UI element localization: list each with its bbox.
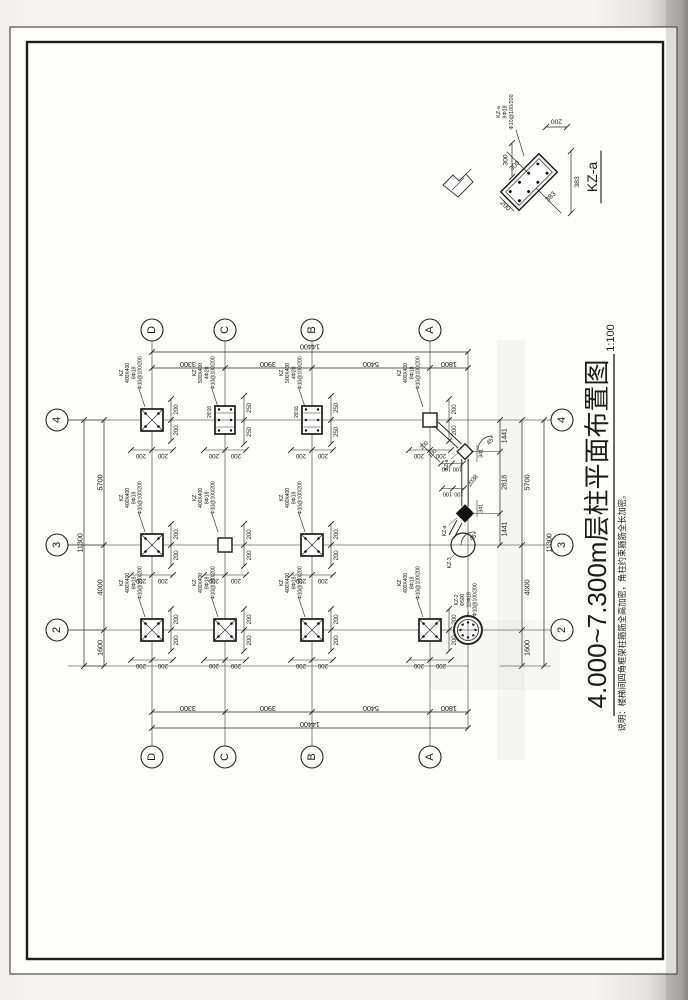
- dim-label: 5400: [363, 360, 379, 369]
- column-label: KZ: [119, 369, 125, 376]
- grid-letter: C: [219, 326, 231, 334]
- column-side-note: 2Φ16: [207, 406, 213, 418]
- dim-label: 200: [173, 550, 180, 561]
- dim-label: 200: [451, 425, 458, 436]
- column-label: KZ: [192, 369, 198, 376]
- grid-number: 3: [51, 542, 63, 548]
- column-label: 400X400: [125, 488, 131, 508]
- dim-label: 200: [208, 452, 219, 459]
- kza-detail-label: KZ-a: [496, 106, 502, 118]
- kza-detail-label: 8Φ18: [503, 105, 509, 118]
- rebar-dot: [230, 419, 232, 421]
- rebar-dot: [317, 408, 319, 410]
- dim-label: 200: [317, 662, 328, 669]
- rebar-dot: [144, 412, 147, 415]
- column-label: KZ: [279, 579, 285, 586]
- column-label: Φ10@100/200: [211, 481, 217, 514]
- rebar-dot: [317, 429, 319, 431]
- column-label: KZ: [279, 494, 285, 501]
- dim-label: 200: [333, 635, 340, 646]
- column-label: 8Φ18: [291, 492, 297, 505]
- dim-label: 200: [135, 662, 146, 669]
- dim-label: 14400: [300, 343, 320, 352]
- sheet-note: 说明：楼梯间四角框架柱箍筋全高加密，角柱约束箍筋全长加密。: [617, 491, 627, 732]
- dim-label: 3300: [180, 704, 196, 713]
- dim-label: 5400: [363, 704, 379, 713]
- grid-letter: D: [146, 753, 158, 761]
- column-label: 500X400: [285, 363, 291, 383]
- column-side-note: 2Φ16: [294, 406, 300, 418]
- column-label: 400X400: [125, 573, 131, 593]
- rebar-dot: [305, 419, 307, 421]
- dim-label: 11300: [76, 533, 85, 552]
- rebar-dot: [304, 537, 307, 540]
- rebar-dot: [218, 429, 220, 431]
- rebar-dot: [144, 635, 147, 638]
- dim-label: 1800: [441, 360, 457, 369]
- column-label: Φ10@100/200: [298, 356, 304, 389]
- column-label: 400X400: [403, 363, 409, 383]
- dim-label: 200: [246, 635, 253, 646]
- dim-label: 100: [454, 491, 463, 497]
- dim-label: 341: [479, 449, 485, 458]
- column-label: 400X400: [198, 573, 204, 593]
- kz3-label: KZ-3: [447, 557, 453, 568]
- column-label: 400X400: [403, 573, 409, 593]
- scan-edge-shadow: [666, 0, 688, 1000]
- column-label: KZ: [397, 579, 403, 586]
- column-label: 400X400: [198, 488, 204, 508]
- dim-label: 200: [173, 614, 180, 625]
- dim-label: 250: [333, 426, 340, 437]
- rebar-dot: [317, 622, 320, 625]
- dim-label: 200: [246, 614, 253, 625]
- rebar-dot: [144, 425, 147, 428]
- rebar-dot: [144, 550, 147, 553]
- grid-number: 3: [556, 542, 568, 548]
- rebar-dot: [157, 412, 160, 415]
- rebar-dot: [317, 550, 320, 553]
- rebar-dot: [422, 622, 425, 625]
- rebar-dot: [157, 537, 160, 540]
- column-label: 8Φ18: [204, 577, 210, 590]
- rebar-dot: [304, 635, 307, 638]
- dim-label: 200: [173, 635, 180, 646]
- dim-label: 100: [443, 491, 452, 497]
- column-label: KZ: [279, 369, 285, 376]
- dim-label: 200: [173, 425, 180, 436]
- grid-letter: A: [424, 753, 436, 761]
- dim-label: 11300: [545, 533, 554, 552]
- rebar-dot: [230, 622, 233, 625]
- column-label: 8Φ18: [204, 492, 210, 505]
- dim-label: 200: [317, 452, 328, 459]
- rebar-dot: [217, 622, 220, 625]
- dim-label: 200: [157, 577, 168, 584]
- column-open: [423, 413, 437, 427]
- rebar-dot: [305, 408, 307, 410]
- rebar-dot: [157, 550, 160, 553]
- kz2-label: KZ-2: [454, 594, 460, 605]
- column-label: 400X400: [125, 363, 131, 383]
- kz2-label: Φ10@100/200: [473, 583, 479, 616]
- dim-label: 200: [413, 662, 424, 669]
- scan-streak: [497, 340, 525, 760]
- column-label: 500X400: [198, 363, 204, 383]
- kza-detail-label: Φ10@100/200: [509, 94, 515, 129]
- sheet-scale: 1:100: [605, 324, 617, 352]
- dim-label: 200: [157, 452, 168, 459]
- dim-label: 250: [333, 402, 340, 413]
- rebar-dot: [230, 429, 232, 431]
- kza-plan-label: KZ-a: [444, 459, 450, 470]
- scanned-drawing-page: DDCCBBAA44332214400330039005400180033003…: [0, 0, 688, 1000]
- column-label: 8Φ18: [409, 577, 415, 590]
- grid-number: 4: [51, 417, 63, 423]
- column-label: 400X400: [285, 573, 291, 593]
- column-label: 400X400: [285, 488, 291, 508]
- grid-letter: B: [306, 753, 318, 760]
- dim-label: 200: [173, 529, 180, 540]
- kz2-label: 12Φ18: [466, 592, 472, 607]
- column-label: KZ: [119, 579, 125, 586]
- kza-detail-title: KZ-a: [584, 162, 600, 193]
- dim-label: 200: [451, 404, 458, 415]
- dim-label: 200: [333, 529, 340, 540]
- column-label: Φ10@100/200: [211, 566, 217, 599]
- rebar-dot: [144, 537, 147, 540]
- dim-label: 1800: [441, 704, 457, 713]
- rebar-dot: [157, 425, 160, 428]
- dim-label: 200: [230, 577, 241, 584]
- column-layout-plan: DDCCBBAA44332214400330039005400180033003…: [0, 0, 688, 1000]
- column-label: Φ10@100/200: [211, 356, 217, 389]
- dim-label: 200: [230, 662, 241, 669]
- dim-label: 100: [453, 466, 462, 472]
- rebar-dot: [218, 408, 220, 410]
- column-label: KZ: [192, 494, 198, 501]
- rebar-dot: [157, 622, 160, 625]
- grid-letter: B: [306, 326, 318, 333]
- scan-streak: [430, 620, 560, 690]
- column-label: KZ: [119, 494, 125, 501]
- rebar-dot: [317, 537, 320, 540]
- dim-label: 200: [173, 404, 180, 415]
- dim-label: 250: [246, 402, 253, 413]
- rebar-dot: [304, 550, 307, 553]
- grid-letter: D: [146, 326, 158, 334]
- column-label: Φ10@100/200: [138, 481, 144, 514]
- grid-number: 4: [556, 417, 568, 423]
- column-label: 4Φ20: [204, 367, 210, 380]
- rebar-dot: [157, 635, 160, 638]
- dim-label: 200: [246, 529, 253, 540]
- grid-number: 2: [51, 627, 63, 633]
- column-label: KZ: [192, 579, 198, 586]
- dim-label: 200: [295, 452, 306, 459]
- grid-letter: C: [219, 753, 231, 761]
- column-label: 8Φ18: [131, 367, 137, 380]
- dim-label: 4000: [96, 580, 105, 596]
- rebar-dot: [317, 419, 319, 421]
- rebar-dot: [144, 622, 147, 625]
- kz2-label: Φ500: [460, 594, 466, 607]
- dim-label: 200: [157, 662, 168, 669]
- column-label: Φ10@100/200: [298, 566, 304, 599]
- dim-label: 3300: [180, 360, 196, 369]
- dim-label: 200: [333, 550, 340, 561]
- dim-label: 5700: [96, 475, 105, 491]
- dim-label: 3900: [260, 704, 276, 713]
- dim-label: 14400: [300, 720, 320, 729]
- column-label: Φ10@100/200: [138, 356, 144, 389]
- rebar-dot: [422, 635, 425, 638]
- sheet-title: 4.000~7.300m层柱平面布置图: [582, 360, 612, 709]
- dim-label: 1600: [96, 640, 105, 656]
- column-label: 8Φ18: [131, 577, 137, 590]
- dim-label: 383: [574, 176, 581, 188]
- column-label: Φ10@100/200: [416, 356, 422, 389]
- dim-label: 200: [551, 118, 563, 125]
- dim-label: 200: [333, 614, 340, 625]
- dim-label: 300: [503, 154, 510, 166]
- dim-label: 200: [295, 662, 306, 669]
- dim-label: 200: [135, 452, 146, 459]
- column-label: KZ: [397, 369, 403, 376]
- column-open: [218, 538, 232, 552]
- sheet-outer-border: [10, 27, 677, 974]
- dim-label: 200: [317, 577, 328, 584]
- dim-label: 3900: [260, 360, 276, 369]
- kza-plan-label: KZ-a: [442, 525, 448, 536]
- column-label: 8Φ18: [291, 577, 297, 590]
- dim-label: 341: [479, 504, 485, 513]
- column-label: Φ10@100/200: [298, 481, 304, 514]
- rebar-dot: [305, 429, 307, 431]
- dim-label: 250: [246, 426, 253, 437]
- column-label: 4Φ20: [291, 367, 297, 380]
- column-label: 8Φ18: [409, 367, 415, 380]
- rebar-dot: [304, 622, 307, 625]
- rebar-dot: [218, 419, 220, 421]
- column-label: Φ10@100/200: [138, 566, 144, 599]
- rebar-dot: [217, 635, 220, 638]
- column-label: Φ10@100/200: [416, 566, 422, 599]
- rebar-dot: [230, 408, 232, 410]
- rebar-dot: [230, 635, 233, 638]
- dim-label: 200: [246, 550, 253, 561]
- dim-label: 200: [208, 662, 219, 669]
- column-label: 8Φ18: [131, 492, 137, 505]
- grid-letter: A: [424, 326, 436, 334]
- rebar-dot: [317, 635, 320, 638]
- dim-label: 200: [413, 452, 424, 459]
- dim-label: 200: [230, 452, 241, 459]
